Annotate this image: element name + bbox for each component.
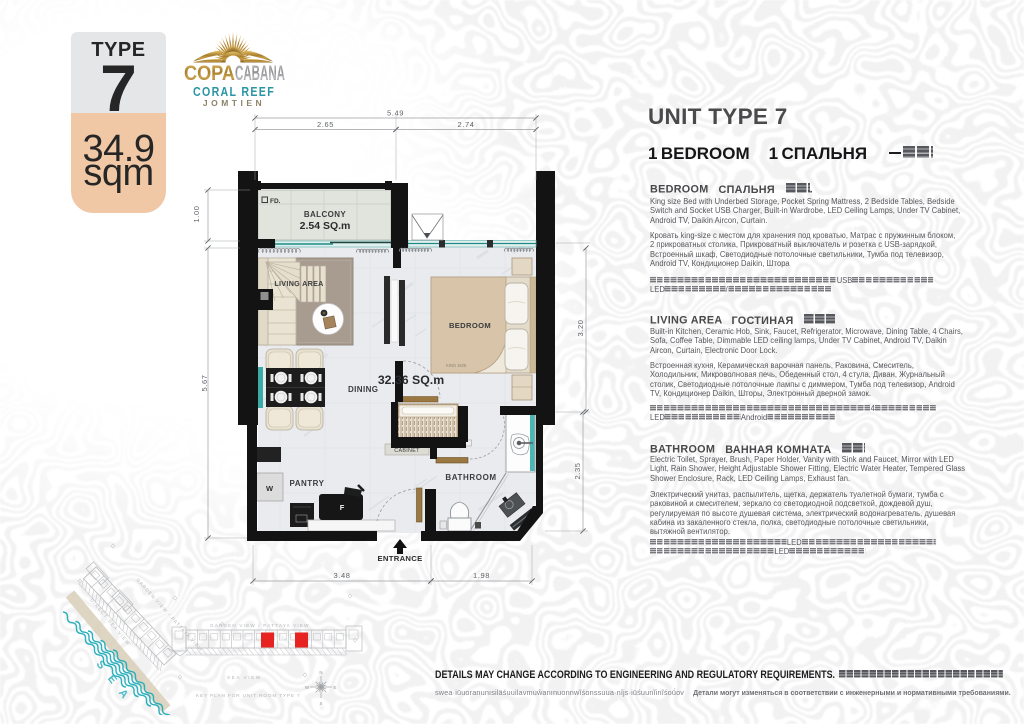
svg-text:N: N — [319, 670, 322, 675]
svg-text:3.20: 3.20 — [576, 320, 585, 337]
svg-text:5.49: 5.49 — [387, 109, 404, 118]
svg-text:1.00: 1.00 — [192, 206, 201, 223]
svg-text:5.67: 5.67 — [200, 375, 209, 392]
svg-text:LIVING AREA: LIVING AREA — [274, 279, 323, 288]
svg-text:SEA VIEW: SEA VIEW — [227, 675, 262, 680]
svg-text:GARDEN VIEW / PATTAYA VIEW: GARDEN VIEW / PATTAYA VIEW — [135, 577, 204, 653]
svg-text:E: E — [333, 685, 336, 690]
svg-text:2.35: 2.35 — [573, 463, 582, 480]
svg-text:PANTRY: PANTRY — [290, 479, 325, 488]
svg-text:2.65: 2.65 — [317, 120, 334, 129]
svg-text:W: W — [266, 484, 274, 493]
svg-text:32.36 SQ.m: 32.36 SQ.m — [378, 373, 444, 387]
svg-text:GARDEN VIEW / PATTAYA VIEW: GARDEN VIEW / PATTAYA VIEW — [210, 623, 310, 628]
svg-text:S: S — [319, 701, 322, 706]
svg-text:FD.: FD. — [270, 198, 281, 205]
svg-text:KING SIZE: KING SIZE — [446, 363, 467, 368]
svg-text:CORAL REEF: CORAL REEF — [193, 84, 275, 99]
svg-text:2.74: 2.74 — [458, 120, 475, 129]
svg-text:2.54 SQ.m: 2.54 SQ.m — [300, 220, 351, 232]
svg-text:BEDROOM: BEDROOM — [449, 321, 491, 330]
svg-text:1.98: 1.98 — [473, 571, 490, 580]
svg-text:CABINET: CABINET — [394, 448, 420, 454]
svg-text:CABANA: CABANA — [235, 61, 285, 85]
svg-text:COPA: COPA — [184, 61, 235, 85]
svg-text:BATHROOM: BATHROOM — [445, 473, 496, 482]
svg-text:W: W — [305, 685, 310, 690]
svg-text:KEY PLAN FOR UNIT ROOM TYPE 7: KEY PLAN FOR UNIT ROOM TYPE 7 — [196, 693, 301, 699]
svg-text:DINING: DINING — [348, 385, 378, 394]
svg-text:BALCONY: BALCONY — [304, 210, 347, 219]
